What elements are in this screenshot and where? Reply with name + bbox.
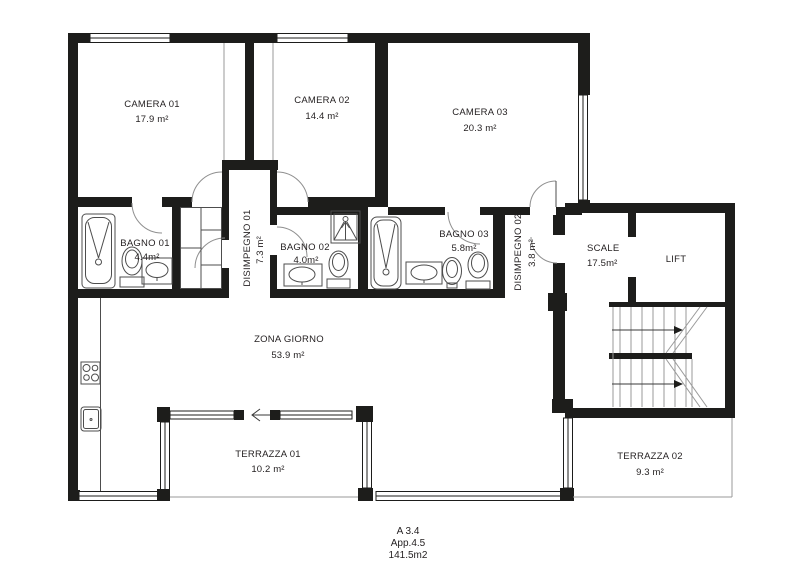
room-label-disimpegno-02: DISIMPEGNO 02 — [513, 213, 524, 290]
terrace-rail-right — [363, 420, 372, 488]
window-terrazza02 — [564, 418, 573, 488]
room-labels: CAMERA 01 17.9 m² CAMERA 02 14.4 m² CAME… — [120, 95, 686, 478]
window-kitchen — [79, 492, 160, 501]
room-area-bagno-01: 4.4m² — [134, 252, 159, 263]
terrace-rail-left — [161, 422, 170, 496]
door-arc-closet — [195, 238, 225, 268]
room-label-scale: SCALE — [587, 243, 619, 254]
room-area-terrazza-02: 9.3 m² — [636, 467, 664, 478]
kitchen — [81, 298, 101, 491]
kitchen-sink-icon — [81, 407, 101, 431]
door-arc-camera01 — [192, 172, 222, 202]
room-area-terrazza-01: 10.2 m² — [251, 464, 284, 475]
bagno01-fixtures — [82, 214, 172, 288]
room-label-disimpegno-01: DISIMPEGNO 01 — [242, 209, 253, 286]
room-area-disimpegno-02: 3.8 m² — [527, 239, 538, 267]
sink-icon — [284, 264, 322, 286]
window-camera03 — [579, 95, 588, 200]
sink-icon — [406, 262, 442, 284]
room-label-camera-03: CAMERA 03 — [452, 107, 508, 118]
stove-icon — [81, 362, 100, 384]
title-total-area: 141.5m2 — [389, 550, 428, 561]
floor-plan-drawing: CAMERA 01 17.9 m² CAMERA 02 14.4 m² CAME… — [0, 0, 807, 565]
bidet-icon — [443, 258, 462, 289]
window-camera01 — [90, 34, 170, 43]
room-area-disimpegno-01: 7.3 m² — [255, 236, 266, 264]
shower-icon — [331, 211, 360, 243]
room-label-camera-02: CAMERA 02 — [294, 95, 350, 106]
window-living — [376, 492, 563, 501]
room-label-zona-giorno: ZONA GIORNO — [254, 334, 324, 345]
room-label-terrazza-02: TERRAZZA 02 — [617, 451, 683, 462]
room-label-lift: LIFT — [666, 254, 687, 265]
bathtub-icon — [371, 217, 401, 289]
room-area-camera-03: 20.3 m² — [463, 123, 496, 134]
title-apartment: App.4.5 — [391, 538, 426, 549]
room-area-zona-giorno: 53.9 m² — [271, 350, 304, 361]
toilet-icon — [327, 251, 350, 288]
room-area-camera-01: 17.9 m² — [135, 114, 168, 125]
room-label-bagno-01: BAGNO 01 — [120, 238, 170, 249]
bathtub-icon — [82, 214, 115, 288]
toilet-icon — [466, 252, 490, 289]
door-arc-camera02 — [277, 172, 308, 202]
title-block: A 3.4 App.4.5 141.5m2 — [389, 526, 428, 561]
door-arc-bagno01 — [132, 203, 162, 233]
room-label-bagno-02: BAGNO 02 — [280, 242, 330, 253]
room-area-bagno-02: 4.0m² — [293, 255, 318, 266]
room-label-camera-01: CAMERA 01 — [124, 99, 180, 110]
room-label-bagno-03: BAGNO 03 — [439, 229, 489, 240]
room-area-camera-02: 14.4 m² — [305, 111, 338, 122]
floor-plan-page: CAMERA 01 17.9 m² CAMERA 02 14.4 m² CAME… — [0, 0, 807, 565]
room-label-terrazza-01: TERRAZZA 01 — [235, 449, 301, 460]
stairs — [609, 302, 725, 407]
title-plan-code: A 3.4 — [397, 526, 420, 537]
closet — [181, 208, 222, 289]
window-camera02 — [277, 34, 348, 43]
door-arc-camera03 — [530, 181, 556, 207]
room-area-scale: 17.5m² — [587, 258, 617, 269]
room-area-bagno-03: 5.8m² — [451, 243, 476, 254]
